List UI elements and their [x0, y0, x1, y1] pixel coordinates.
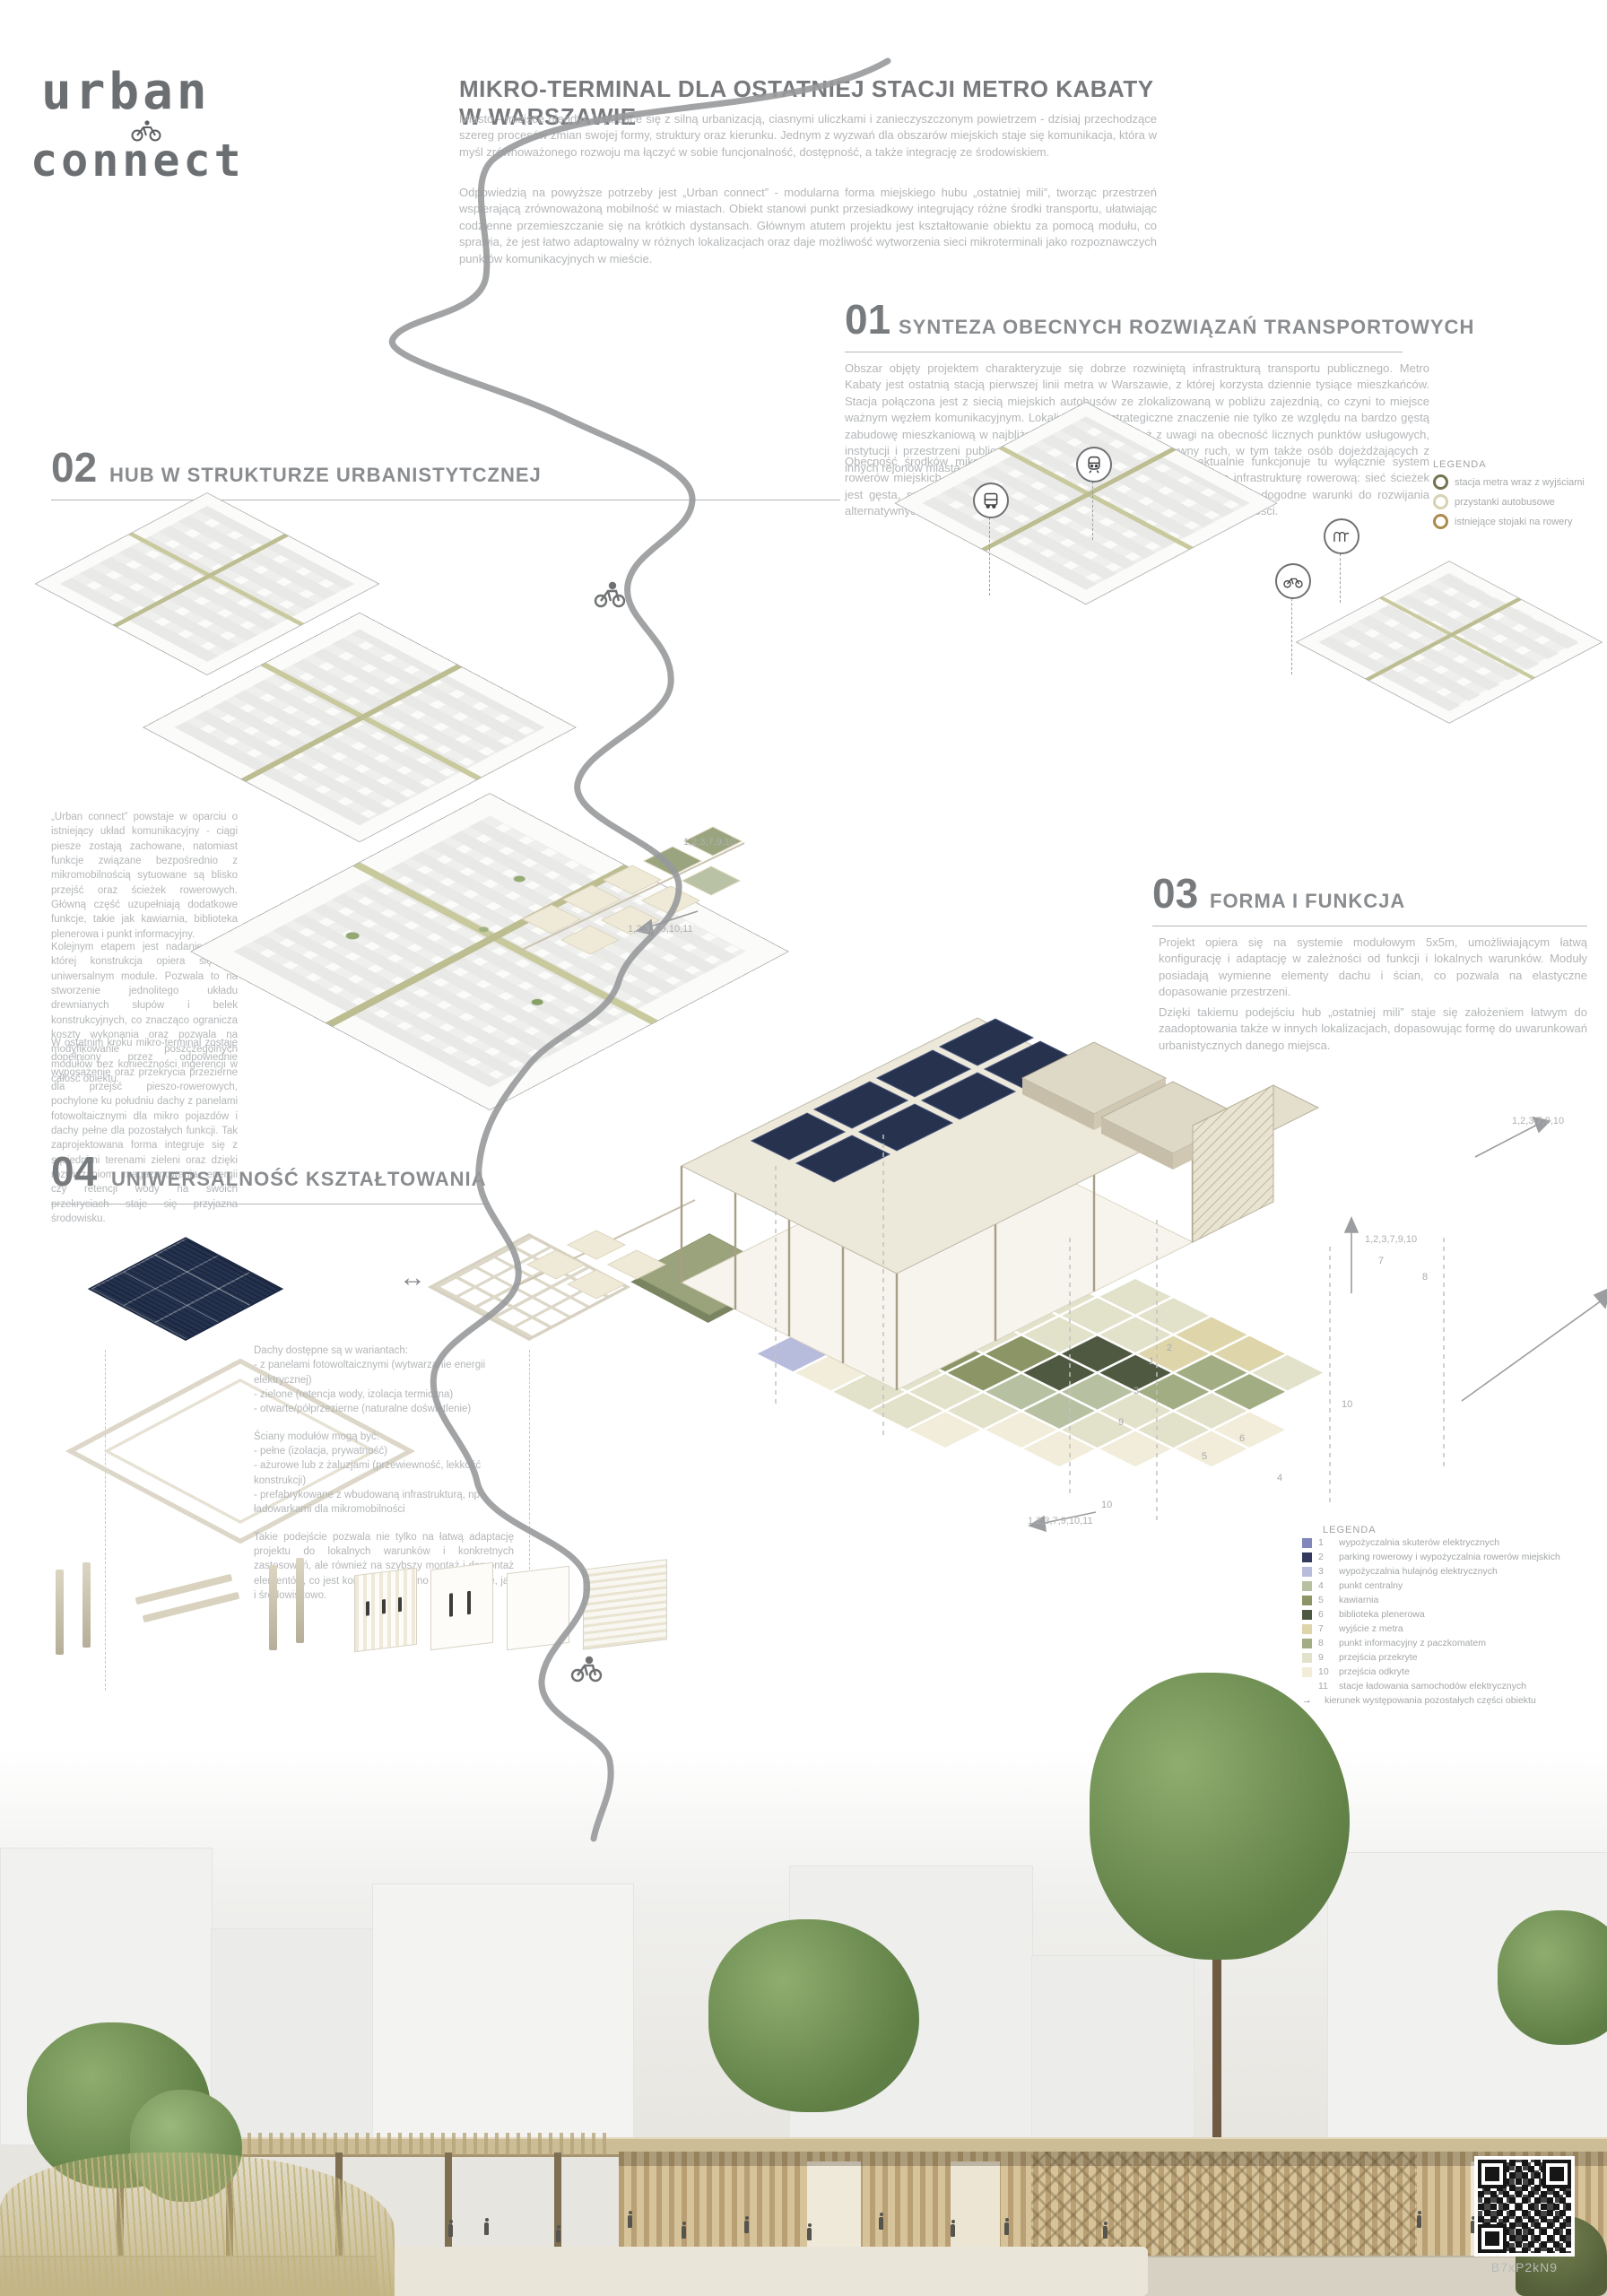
wall-panel-solid [507, 1566, 569, 1651]
pavilion-opening [951, 2161, 1000, 2260]
module-plan-grid [719, 1203, 1361, 1524]
legend-swatch [1302, 1682, 1312, 1692]
roofs-item: - zielone (retencja wody, izolacja termi… [254, 1387, 514, 1402]
legend-swatch [1302, 1581, 1312, 1591]
section-04-number: 04 [51, 1151, 97, 1192]
tile-number: 4 [1277, 1473, 1282, 1483]
person [556, 2230, 560, 2242]
legend-label: przystanki autobusowe [1455, 497, 1555, 508]
legend-label: punkt centralny [1339, 1579, 1403, 1593]
section-03-title: FORMA I FUNKCJA [1210, 890, 1405, 913]
legend-label: wypożyczalnia hulajnóg elektrycznych [1339, 1565, 1498, 1578]
legend-swatch [1302, 1667, 1312, 1677]
roofs-title: Dachy dostępne są w wariantach: [254, 1344, 514, 1358]
wall-panel-hooks [430, 1562, 493, 1651]
walls-item: - ażurowe lub z żaluzjami (przewiewność,… [254, 1458, 514, 1488]
tree [1090, 1673, 1350, 1960]
legend-label: stacje ładowania samochodów elektrycznyc… [1339, 1680, 1526, 1693]
person [628, 2215, 632, 2228]
bus-icon [973, 483, 1009, 518]
background-building [1031, 1955, 1194, 2145]
plan-axis-label: 1,2,3,7,9,10,11 [628, 924, 693, 935]
legend-swatch [1302, 1552, 1312, 1562]
intro-paragraph-2: Odpowiedzią na powyższe potrzeby jest „U… [459, 185, 1157, 267]
plan-axis-label: 1,2,3,7,9,10 [683, 837, 735, 848]
context-map-bikes [1296, 561, 1603, 723]
legend-item: istniejące stojaki na rowery [1433, 514, 1603, 529]
person [744, 2221, 749, 2233]
legend-swatch [1302, 1567, 1312, 1577]
wall-panel-slatted [354, 1568, 417, 1653]
legend-label: przejścia przekryte [1339, 1651, 1418, 1665]
qr-code [1478, 2160, 1571, 2253]
section-rule [1152, 926, 1587, 926]
person [1103, 2226, 1108, 2239]
tile-number: 8 [1422, 1272, 1428, 1283]
route-cyclist-icon-2 [572, 1657, 601, 1681]
bike-icon [1275, 563, 1311, 599]
section-03-paragraph-2: Dzięki takiemu podejściu hub „ostatniej … [1159, 1004, 1587, 1054]
plan-axis-label: 1,2,3,7,9,10,11 [1028, 1516, 1093, 1526]
person [484, 2222, 489, 2235]
section-rule [51, 500, 840, 500]
person [1417, 2215, 1421, 2228]
timber-column [83, 1562, 91, 1648]
legend-label: wyjście z metra [1339, 1622, 1403, 1636]
legend-01-title: LEGENDA [1433, 459, 1603, 470]
person [448, 2224, 453, 2237]
legend-label: kawiarnia [1339, 1594, 1378, 1607]
direction-arrow-icon: → [1302, 1694, 1318, 1708]
pv-roof-diagram [88, 1237, 283, 1340]
tile-number: 9 [1118, 1417, 1124, 1428]
person [807, 2228, 812, 2240]
wall-panel-louvered [583, 1559, 667, 1650]
tree [708, 1919, 919, 2112]
plan-axis-label: 1,2,3,7,9,10 [1365, 1234, 1417, 1245]
legend-swatch [1302, 1624, 1312, 1634]
legend-swatch [1302, 1538, 1312, 1548]
section-02-paragraph-1: „Urban connect” powstaje w oparciu o ist… [51, 810, 238, 942]
legend-03: LEGENDA 1wypożyczalnia skuterów elektryc… [1302, 1525, 1598, 1708]
intro-paragraph-1: Miasto - miejsce niegdyś kojarzące się z… [459, 111, 1157, 161]
legend-swatch [1302, 1653, 1312, 1663]
legend-label: stacja metra wraz z wyjściami [1455, 477, 1585, 488]
tile-number: 6 [1239, 1433, 1245, 1444]
tile-number: 7 [1378, 1256, 1384, 1266]
legend-item: przystanki autobusowe [1433, 494, 1603, 509]
section-02-paragraph-3: W ostatnim kroku mikro-terminal zostaje … [51, 1036, 238, 1226]
route-cyclist-icon-1 [595, 583, 624, 606]
section-02-title: HUB W STRUKTURZE URBANISTYTCZNEJ [109, 464, 542, 487]
legend-item: stacja metra wraz z wyjściami [1433, 474, 1603, 490]
logo-connect: connect [30, 135, 245, 187]
legend-label: przejścia odkryte [1339, 1665, 1410, 1679]
section-01-title: SYNTEZA OBECNYCH ROZWIĄZAŃ TRANSPORTOWYC… [899, 316, 1474, 339]
section-rule [51, 1204, 489, 1205]
roofs-item: - otwarte/półprzezierne (naturalne doświ… [254, 1402, 514, 1416]
map-roads [1297, 561, 1601, 723]
legend-swatch [1302, 1639, 1312, 1648]
tile-number: 10 [1101, 1500, 1112, 1510]
walls-title: Ściany modułów mogą być: [254, 1430, 514, 1444]
timber-column [296, 1558, 304, 1643]
legend-swatch [1302, 1596, 1312, 1605]
roofs-item: - z panelami fotowoltaicznymi (wytwarzan… [254, 1358, 514, 1387]
timber-column [56, 1570, 64, 1655]
tile-number: 3 [1134, 1386, 1139, 1396]
section-rule [845, 352, 1403, 352]
open-lattice-roof-diagram [428, 1233, 630, 1341]
background-building [372, 1883, 634, 2150]
pavilion-opening [807, 2161, 861, 2260]
person [1004, 2222, 1009, 2235]
person [879, 2217, 883, 2230]
legend-01: LEGENDA stacja metra wraz z wyjściami pr… [1433, 459, 1603, 529]
legend-label: kierunek występowania pozostałych części… [1325, 1694, 1536, 1708]
section-03-paragraph-1: Projekt opiera się na systemie modułowym… [1159, 935, 1587, 1001]
tile-number: 1 [1149, 1356, 1154, 1367]
qr-code-label: B7xP2kN9 [1478, 2260, 1571, 2274]
tile-number: 2 [1167, 1343, 1172, 1353]
legend-03-title: LEGENDA [1323, 1525, 1598, 1535]
timber-column [269, 1565, 277, 1650]
swap-arrow-icon: ↔ [399, 1263, 426, 1293]
section-03-number: 03 [1152, 873, 1198, 914]
legend-ring [1433, 494, 1448, 509]
legend-ring [1433, 474, 1448, 490]
logo-urban: urban [41, 63, 211, 121]
metro-icon [1076, 447, 1112, 483]
legend-swatch [1302, 1610, 1312, 1620]
pavilion-post [554, 2152, 561, 2262]
section-04-title: UNIWERSALNOŚĆ KSZTAŁTOWANIA [111, 1168, 487, 1191]
section-01-number: 01 [845, 299, 890, 340]
walkway [377, 2247, 1148, 2296]
plan-axis-label: 1,2,3,7,9,10 [1512, 1116, 1564, 1126]
legend-label: parking rowerowy i wypożyczalnia rowerów… [1339, 1551, 1560, 1564]
legend-label: punkt informacyjny z paczkomatem [1339, 1637, 1486, 1650]
legend-label: biblioteka plenerowa [1339, 1608, 1425, 1622]
person [682, 2226, 686, 2239]
tree [1498, 1910, 1607, 2045]
section-02-number: 02 [51, 447, 97, 488]
tile-number: 10 [1342, 1399, 1352, 1410]
pavilion-post [445, 2152, 452, 2262]
perspective-render [0, 1749, 1607, 2296]
background-building [211, 1928, 374, 2150]
tile-number: 5 [1202, 1451, 1207, 1462]
walls-item: - prefabrykowane z wbudowaną infrastrukt… [254, 1488, 514, 1518]
green-roof-diagram [632, 1233, 787, 1315]
poster: urban connect MIKRO-TERMINAL DLA OSTATNI… [0, 0, 1607, 2296]
walls-item: - pełne (izolacja, prywatność) [254, 1444, 514, 1458]
person [1471, 2221, 1475, 2233]
legend-ring [1433, 514, 1448, 529]
roof-shadow [619, 2152, 1607, 2166]
legend-label: istniejące stojaki na rowery [1455, 517, 1572, 527]
bike-rack-icon [1324, 518, 1359, 554]
logo: urban connect [30, 38, 300, 186]
person [951, 2224, 955, 2237]
legend-label: wypożyczalnia skuterów elektrycznych [1339, 1536, 1499, 1550]
